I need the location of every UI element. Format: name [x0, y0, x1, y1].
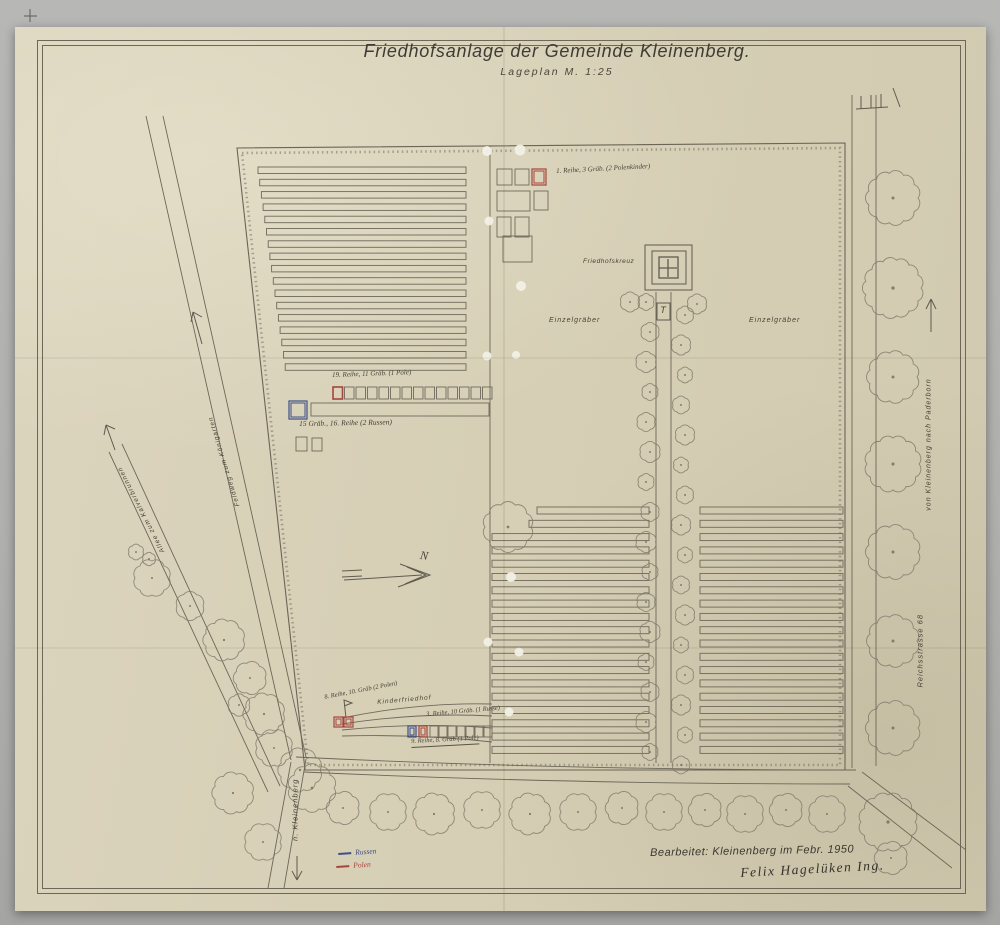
- grave-row: [700, 733, 843, 740]
- tree-center-dot: [629, 301, 631, 303]
- tree-center-dot: [645, 661, 647, 663]
- tree-center-dot: [645, 541, 647, 543]
- grave-row: [492, 680, 649, 687]
- tree-center-dot: [891, 286, 894, 289]
- tree-center-dot: [645, 421, 647, 423]
- tree-center-dot: [892, 197, 895, 200]
- road-label-paderborn: von Kleinenberg nach Paderborn: [926, 345, 933, 545]
- grave-row: [492, 707, 649, 714]
- tree-center-dot: [684, 434, 686, 436]
- punch-hole: [512, 351, 520, 359]
- culvert-marks: [856, 88, 900, 109]
- tree-center-dot: [684, 494, 686, 496]
- grave-row: [492, 534, 649, 541]
- einzelgraeber-right-label: Einzelgräber: [749, 317, 800, 324]
- grave-row: [278, 315, 466, 322]
- grave-square: [515, 217, 529, 237]
- tree-center-dot: [649, 391, 651, 393]
- grave-row: [700, 653, 843, 660]
- grave-row: [280, 327, 466, 334]
- tree-center-dot: [263, 713, 265, 715]
- north-arrow: [342, 564, 430, 587]
- tree-center-dot: [680, 644, 682, 646]
- grave-square-inner: [346, 719, 351, 725]
- road-right: [852, 95, 876, 768]
- punch-hole: [515, 648, 524, 657]
- tree-center-dot: [684, 374, 686, 376]
- trees: [129, 171, 923, 875]
- tree-center-dot: [148, 558, 150, 560]
- tree-center-dot: [645, 301, 647, 303]
- grave-row: [700, 613, 843, 620]
- grave-square: [312, 438, 322, 451]
- tree-center-dot: [232, 792, 234, 794]
- punch-hole: [505, 708, 514, 717]
- grave-row: [700, 707, 843, 714]
- tree-center-dot: [891, 462, 894, 465]
- tree-center-dot: [684, 554, 686, 556]
- tree-center-dot: [262, 841, 264, 843]
- plan-drawing: [0, 0, 1000, 925]
- grave-square: [402, 387, 412, 399]
- punch-hole: [483, 352, 492, 361]
- tree-center-dot: [649, 631, 651, 633]
- grave-square: [430, 726, 438, 737]
- tree-center-dot: [135, 551, 137, 553]
- grave-row: [263, 204, 466, 211]
- grave-square: [345, 387, 355, 399]
- tree-center-dot: [892, 376, 895, 379]
- grave-square: [414, 387, 424, 399]
- grave-row: [700, 627, 843, 634]
- tree-center-dot: [223, 639, 225, 641]
- tree-center-dot: [892, 640, 895, 643]
- grave-row: [282, 339, 466, 346]
- tree-center-dot: [680, 344, 682, 346]
- tree-center-dot: [621, 807, 623, 809]
- tree-center-dot: [342, 807, 344, 809]
- grave-row: [492, 613, 649, 620]
- grave-row: [492, 587, 649, 594]
- punch-hole: [506, 572, 516, 582]
- grave-row: [700, 520, 843, 527]
- punch-holes: [482, 145, 526, 717]
- tree-center-dot: [649, 691, 651, 693]
- t-marker-label: T: [656, 306, 670, 315]
- grave-row: [273, 278, 466, 285]
- grave-square-inner: [291, 403, 305, 417]
- grave-row: [700, 693, 843, 700]
- grave-row: [492, 547, 649, 554]
- grave-row: [261, 192, 466, 199]
- grave-row: [700, 587, 843, 594]
- tree-center-dot: [744, 813, 746, 815]
- punch-hole: [516, 281, 526, 291]
- grave-square: [503, 236, 532, 262]
- tree-center-dot: [696, 303, 698, 305]
- grave-row: [258, 167, 466, 174]
- grave-square: [391, 387, 401, 399]
- road-label-kleinenberg: n. Kleinenberg: [291, 760, 299, 860]
- tree-center-dot: [663, 811, 665, 813]
- grave-square: [289, 401, 307, 419]
- grave-row: [272, 265, 466, 272]
- grave-square: [311, 403, 489, 416]
- tree-center-dot: [249, 677, 251, 679]
- tree-center-dot: [680, 464, 682, 466]
- road-label-reichsstrasse: Reichsstrasse 68: [916, 601, 924, 701]
- tree-center-dot: [645, 721, 647, 723]
- grave-row: [700, 600, 843, 607]
- grave-row: [700, 720, 843, 727]
- tree-center-dot: [680, 524, 682, 526]
- grave-squares: [289, 169, 548, 737]
- tree-center-dot: [680, 584, 682, 586]
- grave-row: [492, 600, 649, 607]
- grave-row: [700, 547, 843, 554]
- punch-hole: [515, 145, 526, 156]
- grave-row: [700, 667, 843, 674]
- grave-square: [437, 387, 447, 399]
- grave-square: [515, 169, 529, 185]
- grave-row: [492, 627, 649, 634]
- grave-row: [265, 216, 466, 223]
- tree-center-dot: [886, 820, 889, 823]
- road-exit-south: [268, 759, 306, 888]
- tree-center-dot: [238, 704, 240, 706]
- tree-center-dot: [433, 813, 435, 815]
- legend-russen-dash: [338, 852, 351, 855]
- grave-row: [277, 302, 466, 309]
- corner-mark: [24, 9, 37, 22]
- grave-square: [483, 387, 493, 399]
- tree-center-dot: [649, 511, 651, 513]
- grave-square: [497, 169, 512, 185]
- grave-square: [471, 387, 481, 399]
- grave-rows: [258, 167, 843, 753]
- annotation-row16: 15 Gräb., 16. Reihe (2 Russen): [299, 418, 392, 427]
- tree-center-dot: [684, 314, 686, 316]
- tree-center-dot: [481, 809, 483, 811]
- grave-row: [492, 693, 649, 700]
- tree-center-dot: [645, 601, 647, 603]
- tree-center-dot: [680, 764, 682, 766]
- tree-center-dot: [645, 481, 647, 483]
- grave-row: [267, 229, 467, 236]
- grave-row: [700, 574, 843, 581]
- page-title: Friedhofsanlage der Gemeinde Kleinenberg…: [307, 42, 807, 60]
- grave-square: [497, 191, 530, 211]
- punch-hole: [485, 217, 494, 226]
- grave-row: [492, 640, 649, 647]
- grave-row: [537, 507, 649, 514]
- punch-hole: [484, 638, 493, 647]
- tree-center-dot: [680, 704, 682, 706]
- page-subtitle: Lageplan M. 1:25: [407, 67, 707, 78]
- grave-row: [492, 746, 649, 753]
- grave-row: [492, 560, 649, 567]
- tree-center-dot: [684, 674, 686, 676]
- grave-row: [700, 507, 843, 514]
- cemetery-boundary: [237, 143, 845, 770]
- tree-center-dot: [680, 404, 682, 406]
- grave-row: [268, 241, 466, 248]
- north-letter: N: [419, 549, 429, 562]
- grave-square: [448, 387, 458, 399]
- tree-center-dot: [826, 813, 828, 815]
- flag-marker: [344, 700, 352, 718]
- tree-center-dot: [649, 571, 651, 573]
- grave-square: [356, 387, 366, 399]
- tree-center-dot: [890, 857, 892, 859]
- grave-row: [700, 534, 843, 541]
- grave-row: [529, 520, 649, 527]
- grave-row: [492, 667, 649, 674]
- grave-row: [284, 352, 467, 359]
- grave-square: [333, 387, 343, 399]
- legend-russen-label: Russen: [355, 846, 377, 856]
- grave-square-inner: [410, 728, 414, 735]
- tree-center-dot: [507, 526, 510, 529]
- tree-center-dot: [529, 813, 531, 815]
- grave-square: [368, 387, 378, 399]
- road-feldweg: [146, 116, 306, 760]
- tree-center-dot: [151, 577, 153, 579]
- grave-row: [260, 179, 466, 186]
- grave-square-inner: [421, 728, 425, 735]
- tree-center-dot: [704, 809, 706, 811]
- grave-square: [296, 437, 307, 451]
- tree-center-dot: [649, 751, 651, 753]
- grave-row: [270, 253, 466, 260]
- arrow-paderborn: [926, 299, 936, 332]
- grave-row: [275, 290, 466, 297]
- grave-square: [425, 387, 435, 399]
- tree-center-dot: [387, 811, 389, 813]
- grave-square: [460, 387, 470, 399]
- tree-center-dot: [785, 809, 787, 811]
- grave-row: [700, 640, 843, 647]
- grave-row: [700, 680, 843, 687]
- grave-square-inner: [534, 171, 544, 183]
- tree-center-dot: [684, 614, 686, 616]
- cross-icon: [659, 259, 677, 277]
- punch-hole: [482, 146, 492, 156]
- tree-center-dot: [299, 769, 301, 771]
- grave-square: [497, 217, 511, 237]
- grave-row: [700, 746, 843, 753]
- internal-paths: [490, 146, 671, 763]
- tree-center-dot: [577, 811, 579, 813]
- tree-center-dot: [649, 451, 651, 453]
- tree-center-dot: [189, 605, 191, 607]
- tree-center-dot: [892, 551, 895, 554]
- grave-row: [492, 720, 649, 727]
- friedhofskreuz-label: Friedhofskreuz: [583, 259, 634, 266]
- tree-center-dot: [273, 747, 275, 749]
- tree-center-dot: [892, 727, 895, 730]
- grave-row: [700, 560, 843, 567]
- grave-row: [492, 733, 649, 740]
- legend-polen-dash: [336, 865, 349, 868]
- grave-square: [534, 191, 548, 210]
- tree-center-dot: [645, 361, 647, 363]
- einzelgraeber-left-label: Einzelgräber: [549, 317, 600, 324]
- scanned-site-plan: Friedhofsanlage der Gemeinde Kleinenberg…: [0, 0, 1000, 925]
- grave-square: [379, 387, 389, 399]
- legend-polen-label: Polen: [353, 860, 371, 870]
- tree-center-dot: [649, 331, 651, 333]
- grave-square-inner: [336, 719, 341, 725]
- tree-center-dot: [684, 734, 686, 736]
